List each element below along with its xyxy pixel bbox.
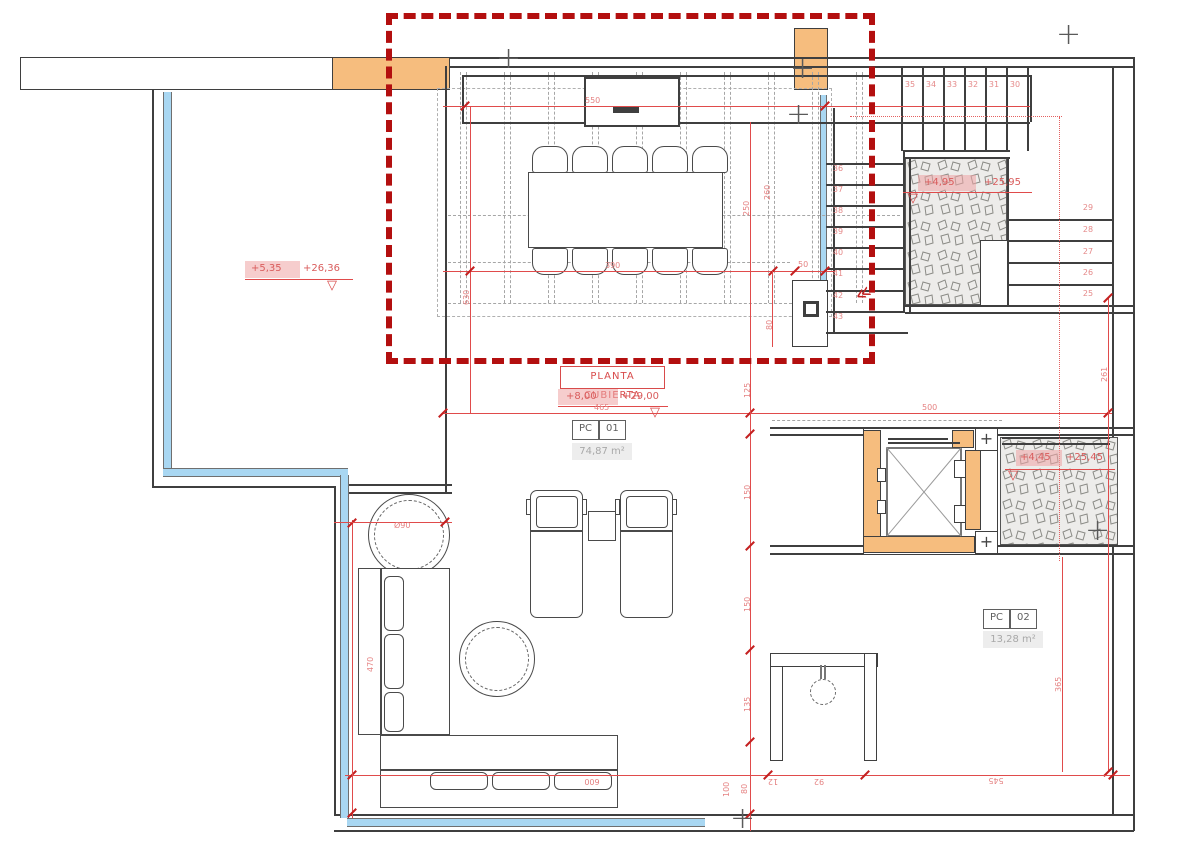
shaft-anchor: + <box>975 428 998 451</box>
level-relative: +5,35 <box>251 263 282 275</box>
dim-label: 545 <box>983 776 1009 785</box>
dim-label: 150 <box>743 485 752 500</box>
lounger-divider <box>621 530 672 532</box>
tread-number: 26 <box>1080 268 1096 277</box>
lounger-divider <box>531 530 582 532</box>
level-marker-icon: ▽ <box>908 192 918 205</box>
tread-number: 33 <box>944 80 960 89</box>
level-marker-icon: ▽ <box>327 279 337 292</box>
lounger-armrest <box>672 499 677 515</box>
tread-number: 25 <box>1080 289 1096 298</box>
elevator-door-gear <box>954 505 966 523</box>
stair-rail <box>903 157 1010 159</box>
shaft-wall-west <box>863 430 881 553</box>
survey-cross-icon: + <box>730 804 755 834</box>
room-area: 74,87 m² <box>572 443 632 460</box>
sofa-vertical-arm[interactable] <box>358 568 450 735</box>
dim-line-bottom <box>345 775 1130 776</box>
stair-landing-notch <box>980 240 1008 306</box>
selection-marquee[interactable] <box>386 13 875 364</box>
elevator-rail-bracket <box>877 500 886 514</box>
dim-label: 470 <box>366 657 375 672</box>
dim-line-365 <box>1062 557 1063 772</box>
stair-rail-west2 <box>909 157 911 313</box>
shaft-wall-ne <box>952 430 974 448</box>
elevator-car <box>886 447 962 537</box>
tread-number: 35 <box>902 80 918 89</box>
dim-line-470 <box>352 520 353 818</box>
terrain-edge-a <box>1002 437 1110 439</box>
room-number: 01 <box>599 420 626 440</box>
room-tag: PC01 <box>572 420 626 440</box>
shaft-wall-east <box>965 450 981 530</box>
level-absolute: +25,45 <box>1066 452 1103 464</box>
dim-label: 125 <box>743 383 752 398</box>
tread-number: 29 <box>1080 203 1096 212</box>
duct-tick <box>824 665 826 679</box>
room-area: 13,28 m² <box>983 631 1043 648</box>
level-relative: +8,00 <box>566 391 597 403</box>
tread-number: 31 <box>986 80 1002 89</box>
dim-label: 365 <box>1054 677 1063 692</box>
tread-number: 28 <box>1080 225 1096 234</box>
terrain-edge-b <box>1002 443 1110 445</box>
dim-label: 150 <box>743 597 752 612</box>
duct-wall-west <box>770 653 783 761</box>
stair-south-wall-a <box>905 305 1135 307</box>
sofa-back-line <box>380 769 618 771</box>
pool-edge-west <box>163 92 172 476</box>
duct-tick <box>820 665 822 679</box>
step-wall-b <box>348 492 452 494</box>
round-table-inner <box>465 627 529 691</box>
elevator-door-track <box>888 442 960 444</box>
lounger-pillow <box>626 496 668 528</box>
lounger-armrest <box>526 499 531 515</box>
shaft-anchor: + <box>975 531 998 554</box>
room-code: PC <box>572 420 599 440</box>
plan-title: PLANTA CUBIERTA <box>560 366 665 389</box>
stair-south-wall-b <box>905 312 1135 314</box>
pool-terrace-west-wall <box>152 90 154 487</box>
dim-label: 135 <box>743 697 752 712</box>
tread-number: 34 <box>923 80 939 89</box>
level-marker-icon: ▽ <box>1008 469 1018 482</box>
counter-east-end <box>1030 75 1032 122</box>
level-absolute: +26,36 <box>303 263 340 275</box>
level-line <box>903 192 1032 193</box>
level-absolute: +29,00 <box>622 391 659 403</box>
side-table[interactable] <box>588 511 616 541</box>
stair-tread <box>1027 67 1029 151</box>
room-number: 02 <box>1010 609 1037 629</box>
survey-cross-icon: + <box>1085 516 1110 546</box>
dim-line-465-500 <box>443 413 1112 414</box>
sofa-cushion <box>384 576 404 631</box>
lounger-pillow <box>536 496 578 528</box>
dim-label: 80 <box>740 784 749 794</box>
level-line <box>1005 469 1115 470</box>
duct-wall-east <box>864 653 877 761</box>
tread-number: 30 <box>1007 80 1023 89</box>
dim-line-table <box>334 522 452 523</box>
elevator-door-track <box>888 438 948 440</box>
room-tag: PC02 <box>983 609 1037 629</box>
slab-dashed-edge <box>772 420 1002 421</box>
survey-cross-icon: + <box>1056 20 1081 50</box>
stair-rail <box>903 150 1010 152</box>
terrace-glass-south <box>347 818 705 827</box>
dim-label: 600 <box>580 777 604 786</box>
step-wall-a <box>348 484 452 486</box>
dim-label: 465 <box>594 403 609 412</box>
tread-number: 32 <box>965 80 981 89</box>
sofa-cushion <box>384 692 404 732</box>
dim-label: 500 <box>922 403 937 412</box>
dim-label: Ø90 <box>394 521 410 530</box>
east-wall-outer <box>1133 57 1135 831</box>
pool-terrace-south-wall <box>152 486 335 488</box>
round-table-inner <box>374 500 444 570</box>
reference-dotted-v <box>1059 117 1060 561</box>
terrace-west-wall <box>334 486 336 815</box>
level-relative: +4,95 <box>924 177 955 189</box>
sofa-cushion <box>384 634 404 689</box>
dim-label: 12 <box>766 777 780 786</box>
shaft-wall-south <box>863 536 975 553</box>
sofa-back-line <box>380 568 382 735</box>
lounger-armrest <box>582 499 587 515</box>
stair-rail-west <box>903 150 905 313</box>
pool-edge-south <box>163 468 348 477</box>
dim-label: 100 <box>722 782 731 797</box>
room-code: PC <box>983 609 1010 629</box>
level-relative: +4,45 <box>1020 452 1051 464</box>
floor-plan-canvas: ≪ 35 34 33 32 31 30 36 37 38 39 40 41 42… <box>0 0 1200 844</box>
elevator-rail-bracket <box>877 468 886 482</box>
tread-number: 27 <box>1080 247 1096 256</box>
dim-label: 92 <box>810 777 828 786</box>
reference-dotted-h <box>850 116 1062 117</box>
elevator-door-gear <box>954 460 966 478</box>
duct-outlet <box>810 679 836 705</box>
dim-label: 261 <box>1100 367 1109 382</box>
level-absolute: +25,95 <box>984 177 1021 189</box>
